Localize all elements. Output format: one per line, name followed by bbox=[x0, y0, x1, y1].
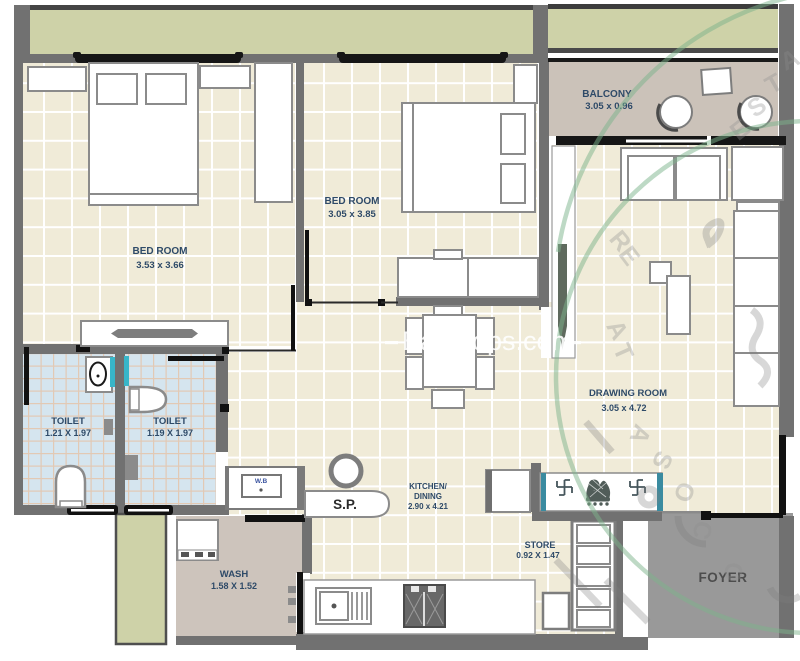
svg-text:3.05 x 4.72: 3.05 x 4.72 bbox=[601, 403, 646, 413]
svg-text:BED ROOM: BED ROOM bbox=[133, 246, 188, 257]
svg-text:BED ROOM: BED ROOM bbox=[325, 196, 380, 207]
svg-text:3.53 x 3.66: 3.53 x 3.66 bbox=[136, 260, 184, 271]
svg-text:1.21 X 1.97: 1.21 X 1.97 bbox=[45, 428, 91, 438]
svg-text:0.92 X 1.47: 0.92 X 1.47 bbox=[516, 550, 560, 560]
svg-text:W.B: W.B bbox=[255, 478, 268, 485]
svg-text:DRAWING ROOM: DRAWING ROOM bbox=[589, 388, 667, 399]
svg-text:S.P.: S.P. bbox=[333, 497, 357, 512]
svg-text:2.90 x 4.21: 2.90 x 4.21 bbox=[408, 502, 449, 511]
svg-text:WASH: WASH bbox=[220, 569, 249, 580]
svg-text:TOILET: TOILET bbox=[153, 416, 187, 427]
svg-text:TOILET: TOILET bbox=[51, 416, 85, 427]
svg-text:1.19 X 1.97: 1.19 X 1.97 bbox=[147, 428, 193, 438]
svg-text:st: st bbox=[435, 326, 457, 356]
svg-text:Ea: Ea bbox=[402, 326, 436, 356]
svg-text:BALCONY: BALCONY bbox=[582, 89, 632, 100]
svg-text:3.05 x 3.85: 3.05 x 3.85 bbox=[328, 209, 376, 220]
svg-text:DINING: DINING bbox=[414, 492, 442, 501]
svg-text:1.58 X 1.52: 1.58 X 1.52 bbox=[211, 581, 257, 591]
svg-text:STORE: STORE bbox=[525, 540, 556, 550]
svg-text:rops.com: rops.com bbox=[463, 326, 574, 356]
svg-text:KITCHEN/: KITCHEN/ bbox=[409, 482, 448, 491]
